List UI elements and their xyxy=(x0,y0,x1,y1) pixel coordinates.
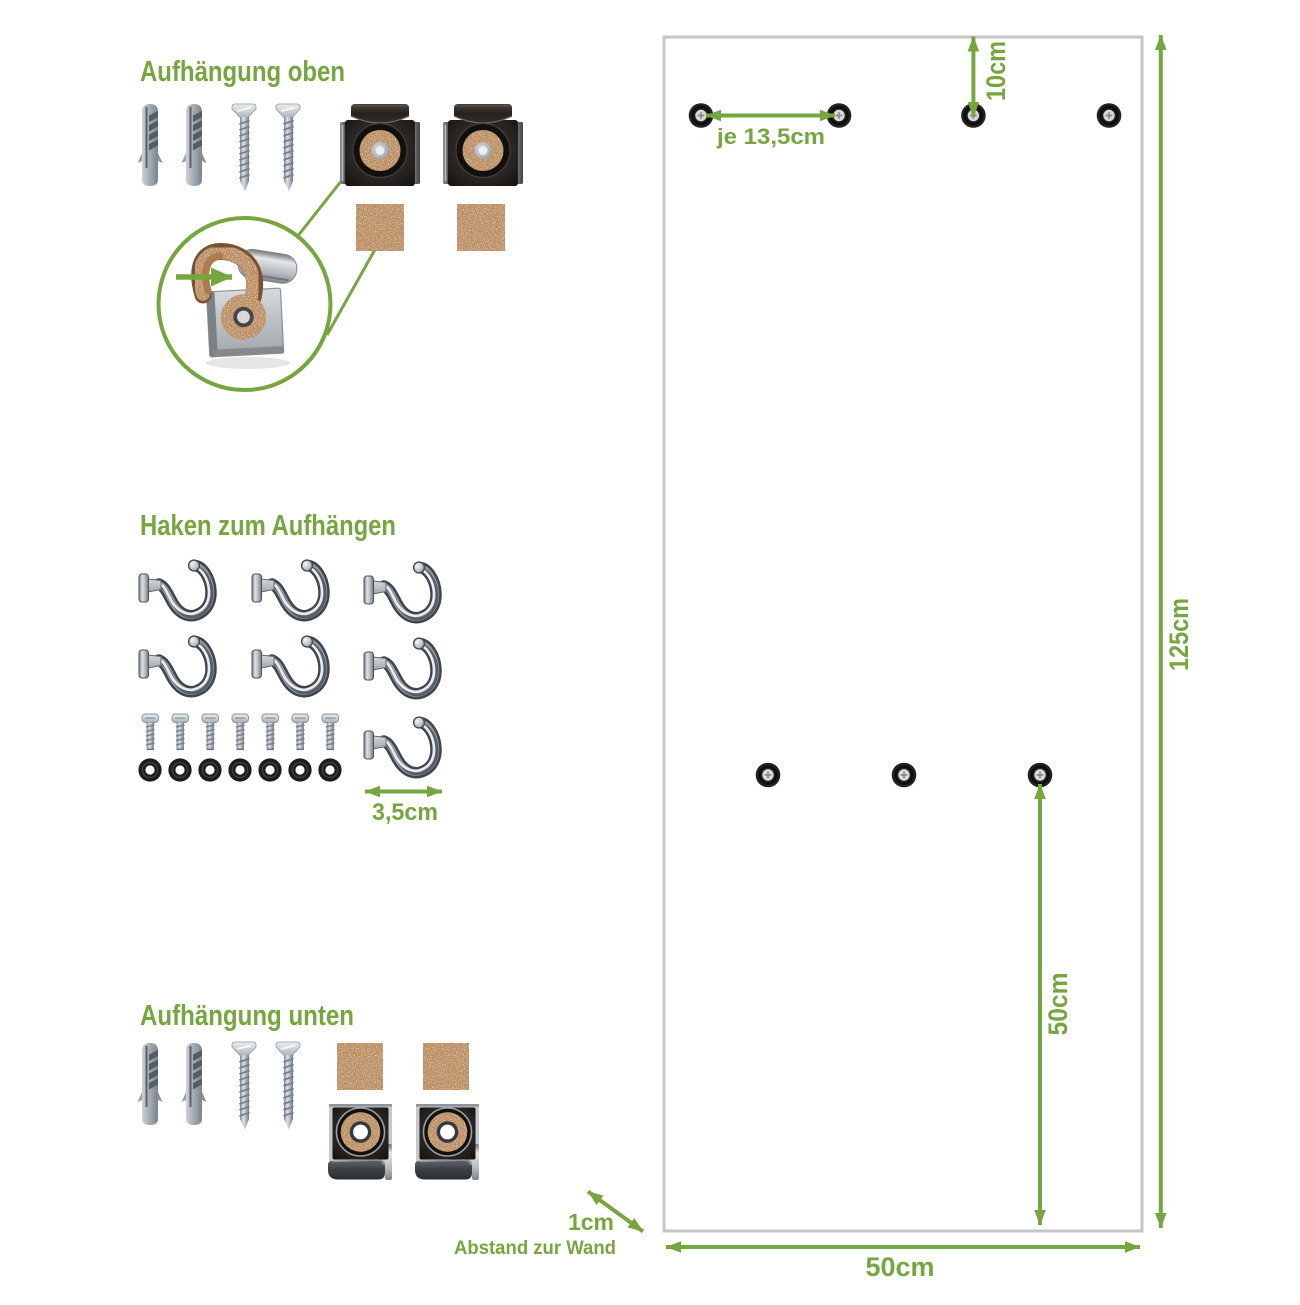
svg-text:50cm: 50cm xyxy=(1043,973,1073,1036)
svg-text:Aufhängung oben: Aufhängung oben xyxy=(140,56,345,88)
svg-text:10cm: 10cm xyxy=(981,41,1011,101)
svg-text:50cm: 50cm xyxy=(866,1252,935,1282)
svg-text:Abstand zur Wand: Abstand zur Wand xyxy=(454,1238,616,1259)
svg-text:125cm: 125cm xyxy=(1164,598,1194,671)
svg-text:Haken zum Aufhängen: Haken zum Aufhängen xyxy=(140,510,396,542)
svg-text:je 13,5cm: je 13,5cm xyxy=(716,124,825,149)
svg-text:Aufhängung unten: Aufhängung unten xyxy=(140,1000,354,1032)
svg-text:1cm: 1cm xyxy=(568,1209,614,1235)
svg-text:3,5cm: 3,5cm xyxy=(372,799,438,826)
